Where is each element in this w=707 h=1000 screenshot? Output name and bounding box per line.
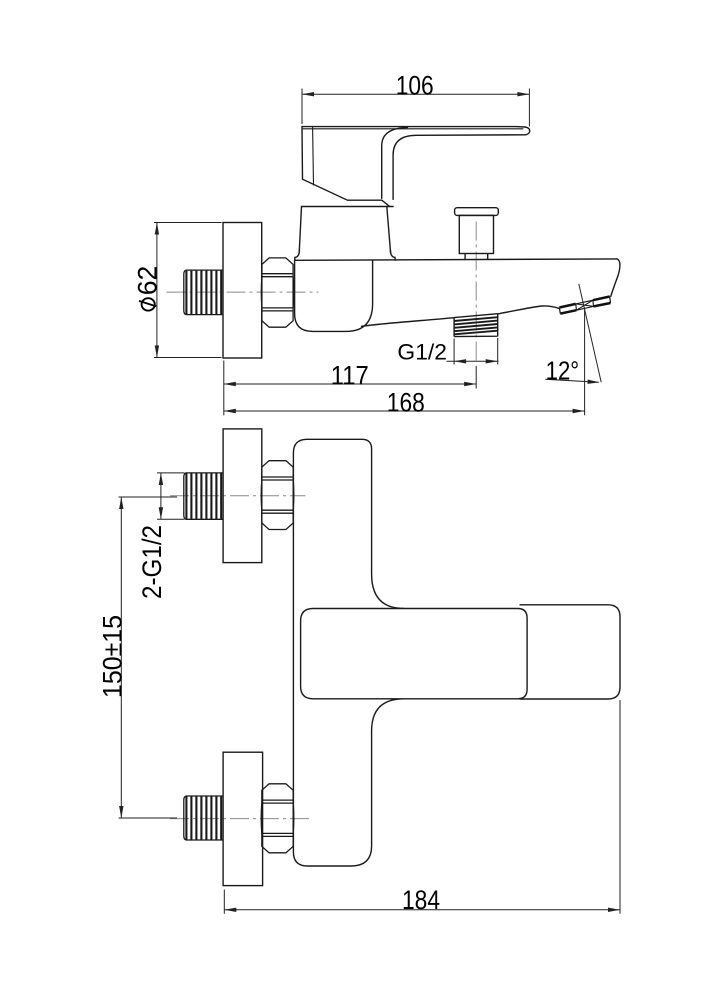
svg-text:12°: 12° [546, 356, 580, 386]
svg-text:G1/2: G1/2 [397, 340, 447, 365]
svg-text:184: 184 [402, 885, 440, 915]
svg-text:62: 62 [132, 266, 162, 296]
svg-text:168: 168 [387, 387, 425, 417]
svg-text:106: 106 [396, 70, 434, 100]
svg-text:150±15: 150±15 [98, 615, 128, 698]
svg-text:2-G1/2: 2-G1/2 [137, 525, 167, 599]
svg-text:117: 117 [331, 360, 369, 390]
